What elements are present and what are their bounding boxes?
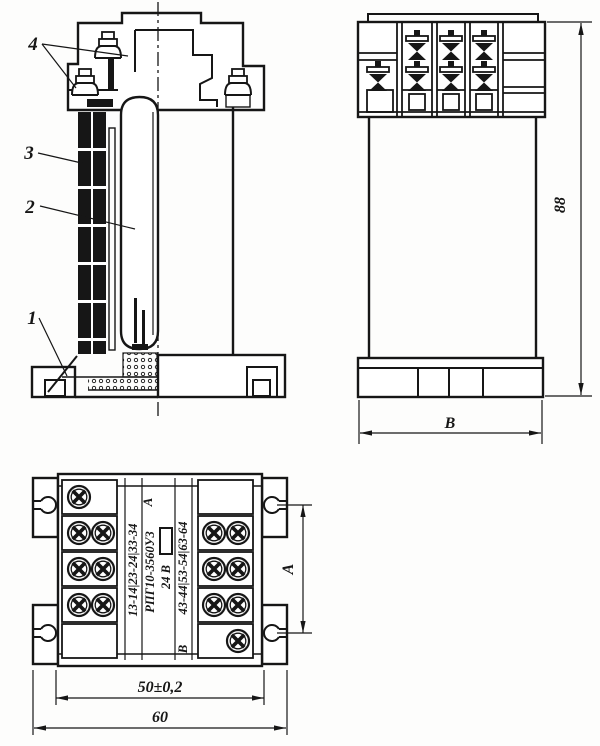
voltage-label: 24 В <box>159 565 173 590</box>
terminal-screw-icon <box>92 558 114 580</box>
terminal-block-right <box>198 480 253 658</box>
terminal-screw-icon <box>68 522 90 544</box>
technical-drawing-svg: 4 3 2 1 <box>0 0 600 746</box>
dimension-88: 88 <box>545 22 592 396</box>
sealing-compound <box>88 378 158 390</box>
terminal-screw-icon <box>92 522 114 544</box>
mount-tab-top-left <box>33 478 58 537</box>
sealed-capsule <box>121 97 158 350</box>
sealing-compound <box>123 353 157 377</box>
section-view: 4 3 2 1 <box>23 2 285 418</box>
terminal-block-left <box>62 480 117 658</box>
conductor-bar <box>87 99 113 107</box>
terminal-screw-icon <box>68 486 90 508</box>
front-view: 88 В <box>358 14 592 444</box>
terminal-screw-icon <box>203 522 225 544</box>
mount-foot-left <box>32 367 75 397</box>
mount-tab-bottom-left <box>33 605 58 664</box>
conductor-bar <box>108 56 114 89</box>
terminal-screw-icon <box>68 594 90 616</box>
dimension-B: В <box>359 400 542 444</box>
terminal-screw-icon <box>227 522 249 544</box>
terminal-group-a-label: 13-14|23-24|33-34 <box>126 524 140 617</box>
spring-strip <box>109 128 115 350</box>
terminal-group-b-label: 43-44|53-54|63-64 <box>176 522 190 616</box>
terminal-screw-icon <box>68 558 90 580</box>
base-front <box>358 358 543 397</box>
dimension-50: 50±0,2 <box>56 670 264 705</box>
bottom-view: 13-14|23-24|33-34 А РПГ10-3560У3 24 В 43… <box>33 474 312 735</box>
contact-stack <box>78 112 106 354</box>
callout-1-label: 1 <box>27 308 37 329</box>
group-letter-b: В <box>175 644 190 654</box>
mount-tab-top-right <box>262 478 287 537</box>
dim-overall-width-label: 60 <box>152 709 168 726</box>
group-letter-a: А <box>140 497 155 507</box>
dim-mount-width-label: 50±0,2 <box>138 679 183 696</box>
terminal-screw-icon <box>203 594 225 616</box>
terminal-screw-icon <box>227 630 249 652</box>
relay-type-label: РПГ10-3560У3 <box>143 531 157 613</box>
callout-4-label: 4 <box>27 34 38 55</box>
dim-width-letter-label: В <box>444 415 456 432</box>
terminal-screw-icon <box>92 594 114 616</box>
dim-mount-height-label: А <box>280 563 297 575</box>
callout-3-label: 3 <box>23 143 34 164</box>
terminal-screw-icon <box>203 558 225 580</box>
terminal-screw-icon <box>227 558 249 580</box>
terminal-screw-icon <box>227 594 249 616</box>
callout-2-label: 2 <box>24 197 35 218</box>
drawing-canvas: 4 3 2 1 <box>0 0 600 746</box>
dim-height-label: 88 <box>552 197 569 213</box>
mount-tab-bottom-right <box>262 605 287 664</box>
base-right <box>158 355 285 397</box>
